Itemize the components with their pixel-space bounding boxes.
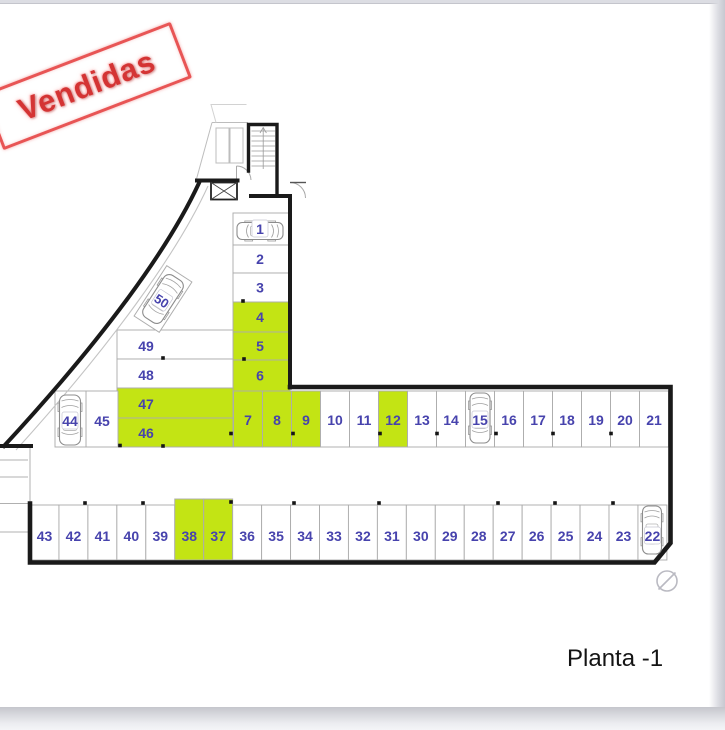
- parking-space-47-cell[interactable]: [117, 388, 233, 418]
- space-9-label: 9: [302, 412, 310, 428]
- space-14-label: 14: [443, 412, 459, 428]
- space-38-label: 38: [181, 528, 197, 544]
- parking-space-48-cell[interactable]: [117, 359, 233, 388]
- space-40-label: 40: [124, 528, 140, 544]
- parking-space-49-cell[interactable]: [117, 330, 233, 359]
- space-33-label: 33: [326, 528, 342, 544]
- space-4-label: 4: [256, 309, 264, 325]
- space-36-label: 36: [239, 528, 255, 544]
- space-2-label: 2: [256, 251, 264, 267]
- space-15-label: 15: [472, 412, 488, 428]
- space-27-label: 27: [500, 528, 516, 544]
- space-17-label: 17: [530, 412, 546, 428]
- floor-label: Planta -1: [567, 645, 663, 673]
- space-46-label: 46: [138, 425, 154, 441]
- space-30-label: 30: [413, 528, 429, 544]
- space-41-label: 41: [95, 528, 111, 544]
- space-31-label: 31: [384, 528, 400, 544]
- space-42-label: 42: [66, 528, 82, 544]
- space-29-label: 29: [442, 528, 458, 544]
- space-26-label: 26: [529, 528, 545, 544]
- space-37-label: 37: [210, 528, 226, 544]
- space-18-label: 18: [559, 412, 575, 428]
- space-23-label: 23: [616, 528, 632, 544]
- space-6-label: 6: [256, 368, 264, 384]
- space-12-label: 12: [385, 412, 401, 428]
- plan-walls: [2, 125, 671, 563]
- space-47-label: 47: [138, 396, 154, 412]
- space-19-label: 19: [588, 412, 604, 428]
- space-7-label: 7: [244, 412, 252, 428]
- space-35-label: 35: [268, 528, 284, 544]
- space-43-label: 43: [37, 528, 53, 544]
- space-39-label: 39: [153, 528, 169, 544]
- page-bottom-edge: [0, 707, 725, 730]
- space-25-label: 25: [558, 528, 574, 544]
- space-21-label: 21: [646, 412, 662, 428]
- space-49-label: 49: [138, 338, 154, 354]
- space-28-label: 28: [471, 528, 487, 544]
- space-1-label: 1: [256, 221, 264, 237]
- parking-space-46-cell[interactable]: [117, 418, 233, 447]
- space-48-label: 48: [138, 367, 154, 383]
- space-22-label: 22: [645, 528, 661, 544]
- space-10-label: 10: [327, 412, 343, 428]
- space-11-label: 11: [357, 412, 372, 428]
- space-3-label: 3: [256, 280, 264, 296]
- space-45-label: 45: [94, 413, 110, 429]
- space-13-label: 13: [414, 412, 430, 428]
- wall: [249, 125, 278, 197]
- no-parking-icon: [657, 571, 677, 591]
- space-16-label: 16: [501, 412, 517, 428]
- space-44-label: 44: [62, 413, 78, 429]
- space-34-label: 34: [297, 528, 313, 544]
- space-32-label: 32: [355, 528, 371, 544]
- page-right-edge: [709, 0, 725, 708]
- space-5-label: 5: [256, 338, 264, 354]
- space-24-label: 24: [587, 528, 603, 544]
- space-20-label: 20: [617, 412, 633, 428]
- elevator-shaft: [230, 128, 243, 163]
- elevator-shaft: [216, 128, 229, 163]
- page-top-border: [0, 0, 725, 4]
- space-8-label: 8: [273, 412, 281, 428]
